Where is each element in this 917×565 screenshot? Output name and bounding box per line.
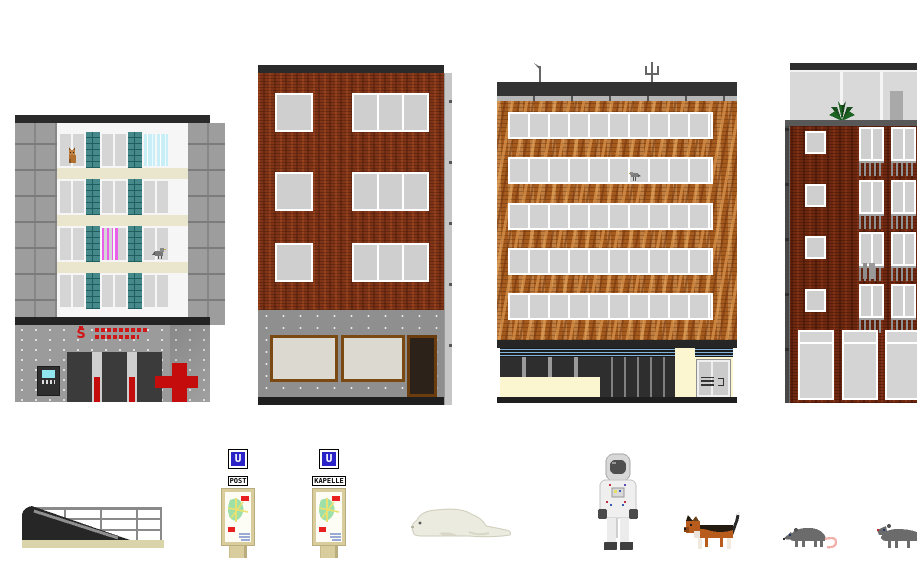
ribbon-window-band [508, 203, 713, 230]
glass-block-column [86, 132, 100, 168]
door-pane [861, 129, 871, 159]
window [102, 275, 113, 307]
window-panes [510, 295, 711, 318]
window-pane [354, 245, 377, 280]
bank-door [102, 352, 127, 402]
window [115, 181, 126, 213]
door-pane [873, 182, 883, 212]
balcony-unit [859, 127, 884, 176]
balcony-door [859, 127, 884, 161]
blue-stripe-band [695, 348, 733, 357]
map-kiosk [313, 489, 345, 545]
balcony-unit [891, 127, 916, 176]
cream-pier [675, 348, 695, 397]
red-stripe [129, 377, 135, 402]
window-pane [379, 245, 402, 280]
bird-sprite [629, 169, 641, 182]
atm [37, 366, 60, 396]
ubahn-sign-post: U POST [217, 450, 259, 550]
door-pane [905, 129, 915, 159]
door-pane [905, 234, 915, 264]
cream-wall [500, 377, 600, 397]
glass-block-column [128, 226, 142, 262]
window-pane [379, 95, 402, 130]
astronaut-sprite [593, 452, 643, 552]
shop-window [341, 335, 405, 382]
window [805, 184, 826, 207]
storefront-top-band [497, 340, 737, 348]
door-pane [873, 129, 883, 159]
stone-pillar-left [15, 123, 57, 325]
triple-window [352, 93, 429, 132]
rat-sprite-cropped [877, 518, 917, 550]
intercom-panel [701, 377, 714, 386]
window [144, 275, 155, 307]
ribbon-window-band [508, 293, 713, 320]
roof-band [497, 82, 737, 96]
transom-bar [844, 342, 876, 344]
door-pane [893, 129, 903, 159]
window-pane [807, 291, 824, 310]
building-apartments [785, 63, 917, 403]
window [275, 93, 313, 132]
ubahn-sign-kapelle: U KAPELLE [308, 450, 350, 550]
balcony-railing [859, 161, 884, 176]
cream-band [57, 168, 188, 179]
building-office [497, 60, 737, 403]
window-panes [510, 114, 711, 137]
dog-sprite [684, 512, 746, 554]
roof-plant-sprite [829, 95, 855, 121]
window-pane [354, 95, 377, 130]
window [115, 275, 126, 307]
door-pane [861, 182, 871, 212]
entry-door [697, 360, 730, 397]
window-pane [277, 95, 311, 130]
window-pane [807, 186, 824, 205]
balcony-railing [891, 214, 916, 229]
sign-pole [229, 545, 247, 558]
sign-text-line [95, 328, 147, 332]
door-pane [893, 286, 903, 316]
ubahn-logo: U [229, 450, 247, 468]
sign-text-line [95, 335, 139, 339]
window [102, 134, 113, 166]
balcony-door [859, 232, 884, 266]
building-brick-shop [258, 65, 452, 405]
window [805, 289, 826, 312]
roof-band [15, 115, 210, 123]
chimney-box [890, 91, 903, 120]
window [115, 228, 126, 260]
station-name-label: POST [228, 476, 249, 486]
window [73, 275, 84, 307]
glass-block-column [128, 273, 142, 309]
cat-sprite [67, 147, 78, 163]
balcony-door [859, 180, 884, 214]
door-pane [873, 286, 883, 316]
balcony-clutter [863, 263, 875, 279]
ground-floor-window [798, 330, 834, 400]
door-handle [718, 378, 724, 386]
glass-block-column [86, 179, 100, 215]
balcony-door [859, 284, 884, 318]
roof-antennas [497, 60, 737, 84]
side-wall-strip [444, 73, 452, 405]
balcony-door [891, 180, 916, 214]
balcony-unit [891, 284, 916, 333]
window-pane [404, 245, 427, 280]
window-pane [354, 174, 377, 209]
station-name-label: KAPELLE [312, 476, 346, 486]
window-row [57, 179, 188, 215]
base-band [258, 397, 444, 405]
balcony-door [891, 284, 916, 318]
glass-block-column [128, 132, 142, 168]
red-cross [172, 363, 187, 402]
door-pane [861, 234, 871, 264]
window [144, 134, 155, 166]
window [73, 181, 84, 213]
window-pane [277, 245, 311, 280]
transom-bar [887, 342, 917, 344]
balcony-railing [891, 266, 916, 281]
ubahn-logo: U [320, 450, 338, 468]
window [60, 181, 71, 213]
window-row [57, 273, 188, 309]
balcony-door [891, 232, 916, 266]
window [157, 275, 168, 307]
glass-entrance [600, 357, 675, 397]
sparkasse-sign-text [95, 328, 147, 342]
ground-floor-window [842, 330, 878, 400]
window [805, 131, 826, 154]
balcony-unit [859, 180, 884, 229]
door-pane [861, 286, 871, 316]
pigeon-sprite [152, 245, 166, 261]
door-pane [905, 182, 915, 212]
cream-band [57, 262, 188, 273]
bank-door [67, 352, 92, 402]
ribbon-window-band [508, 248, 713, 275]
ground-floor-window [885, 330, 917, 400]
balcony-unit [859, 232, 884, 281]
cream-band [57, 215, 188, 226]
window [60, 275, 71, 307]
sparkasse-logo: S [73, 326, 89, 346]
window [275, 243, 313, 282]
roof-band [258, 65, 444, 73]
atm-screen [42, 370, 55, 378]
blue-stripe-band [500, 348, 675, 357]
window-lit-cyan [157, 134, 168, 166]
window [60, 228, 71, 260]
ribbon-window-band [508, 157, 713, 184]
transom-bar [800, 342, 832, 344]
balcony-railing [859, 214, 884, 229]
window [73, 228, 84, 260]
triple-window [352, 243, 429, 282]
shop-window [270, 335, 338, 382]
rat-sprite [783, 521, 839, 551]
door-pane [893, 182, 903, 212]
door-pane [905, 286, 915, 316]
sprite-sheet-canvas: S [0, 0, 917, 565]
balcony-railing [891, 161, 916, 176]
balcony-unit [859, 284, 884, 333]
city-map [225, 492, 251, 542]
window-panes [510, 205, 711, 228]
atm-keypad [42, 380, 55, 384]
sparkasse-logo-letter: S [73, 331, 89, 339]
door-pane [873, 234, 883, 264]
triple-window [352, 172, 429, 211]
window [275, 172, 313, 211]
window [805, 236, 826, 259]
window [144, 181, 155, 213]
building-bank: S [15, 115, 210, 402]
map-kiosk [222, 489, 254, 545]
window [102, 181, 113, 213]
shop-door [407, 335, 437, 397]
balcony-unit [891, 232, 916, 281]
balcony-door [891, 127, 916, 161]
window [157, 181, 168, 213]
door-pane [893, 234, 903, 264]
glass-block-column [86, 226, 100, 262]
stone-pillar-right [188, 123, 225, 325]
shop-window-row [500, 357, 600, 377]
floor-divider-band [15, 317, 210, 325]
window [115, 134, 126, 166]
glass-block-column [128, 179, 142, 215]
window-pane [807, 238, 824, 257]
window-row [57, 226, 188, 262]
window-panes [510, 250, 711, 273]
seal-sprite [409, 504, 513, 542]
city-map [316, 492, 342, 542]
window-panes [510, 159, 711, 182]
window-pane [379, 174, 402, 209]
red-stripe [94, 377, 100, 402]
drainpipe [785, 126, 790, 403]
ribbon-window-band [508, 112, 713, 139]
subway-entrance [18, 502, 164, 550]
glass-block-column [86, 273, 100, 309]
balcony-unit [891, 180, 916, 229]
window-pane [404, 174, 427, 209]
window-pane [807, 133, 824, 152]
window-pane [277, 174, 311, 209]
window-pane [404, 95, 427, 130]
sign-pole [320, 545, 338, 558]
window-pink-graffiti [102, 228, 113, 260]
roof-band [790, 63, 917, 70]
base-band [497, 397, 737, 403]
